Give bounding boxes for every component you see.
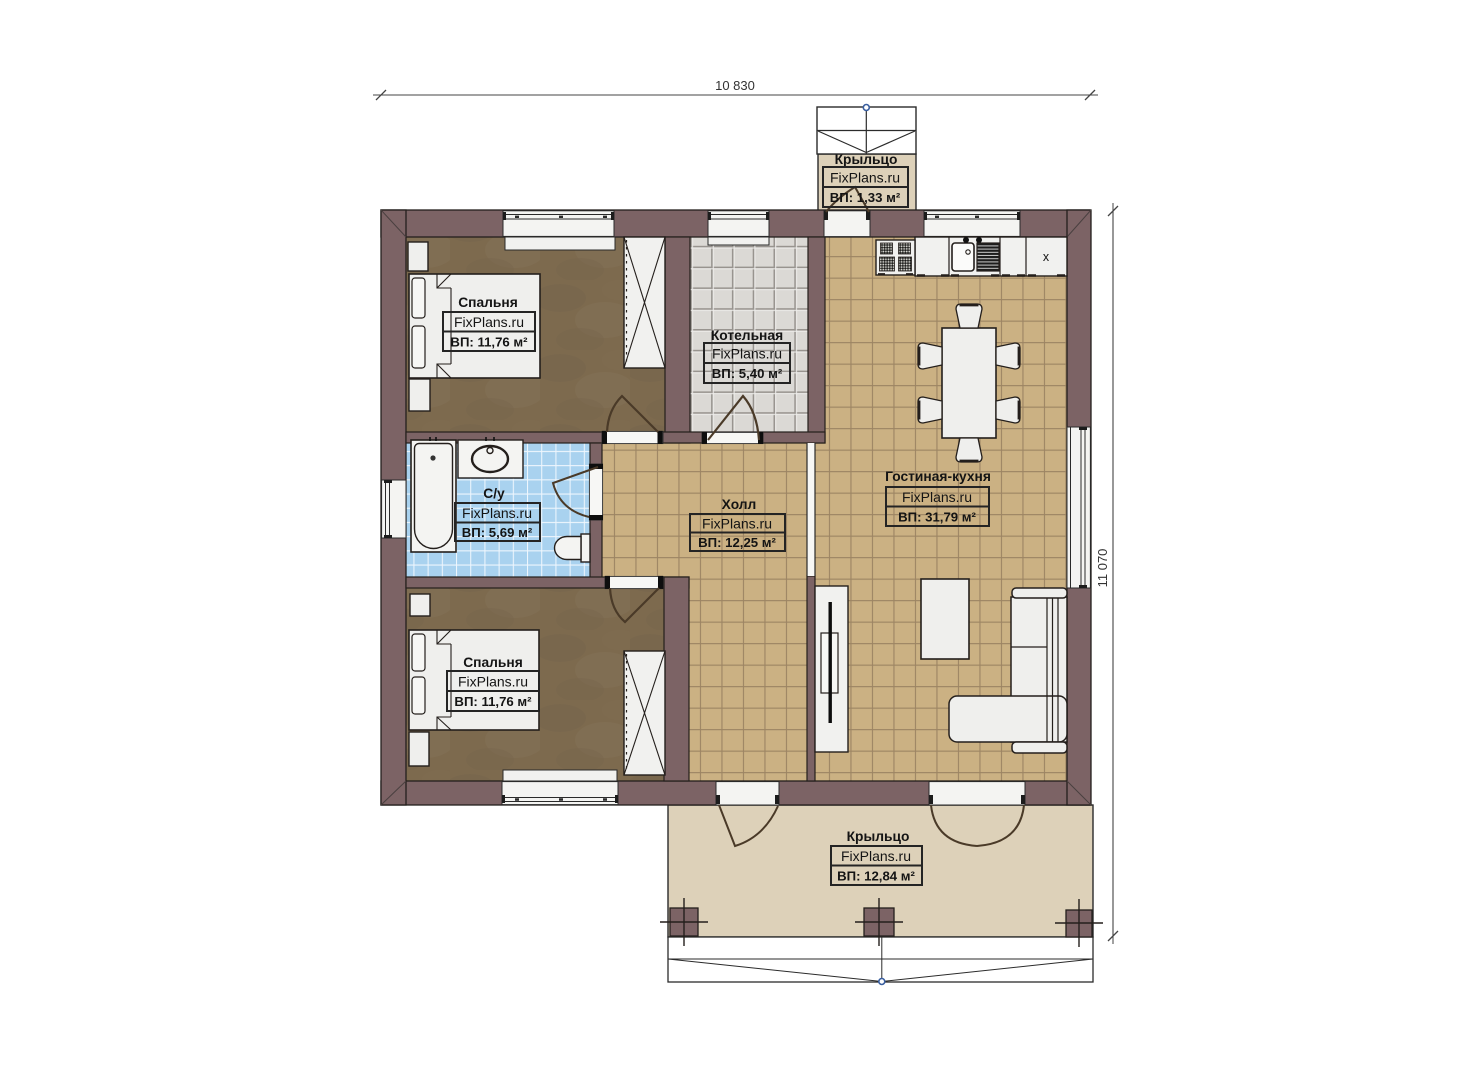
svg-text:Спальня: Спальня xyxy=(463,655,523,670)
svg-text:ВП: 5,40 м²: ВП: 5,40 м² xyxy=(712,366,783,381)
svg-text:x: x xyxy=(1043,250,1050,264)
svg-text:ВП: 1,33 м²: ВП: 1,33 м² xyxy=(830,190,901,205)
svg-text:ВП: 12,84 м²: ВП: 12,84 м² xyxy=(837,869,915,884)
svg-text:FixPlans.ru: FixPlans.ru xyxy=(458,674,528,690)
svg-text:ВП: 12,25 м²: ВП: 12,25 м² xyxy=(698,535,776,550)
svg-text:ВП: 11,76 м²: ВП: 11,76 м² xyxy=(454,694,532,709)
svg-text:10 830: 10 830 xyxy=(715,78,755,93)
svg-text:ВП: 31,79 м²: ВП: 31,79 м² xyxy=(898,510,976,525)
svg-text:Спальня: Спальня xyxy=(458,295,518,310)
svg-text:ВП: 5,69 м²: ВП: 5,69 м² xyxy=(462,525,533,540)
svg-text:FixPlans.ru: FixPlans.ru xyxy=(841,848,911,864)
svg-text:С/у: С/у xyxy=(483,486,505,501)
svg-text:FixPlans.ru: FixPlans.ru xyxy=(830,170,900,186)
svg-text:11 070: 11 070 xyxy=(1095,549,1110,588)
svg-text:Котельная: Котельная xyxy=(711,328,783,343)
svg-text:Гостиная-кухня: Гостиная-кухня xyxy=(885,469,991,484)
svg-text:FixPlans.ru: FixPlans.ru xyxy=(902,489,972,505)
svg-text:FixPlans.ru: FixPlans.ru xyxy=(462,505,532,521)
svg-text:Крыльцо: Крыльцо xyxy=(847,829,910,844)
svg-text:Крыльцо: Крыльцо xyxy=(835,152,898,167)
svg-text:FixPlans.ru: FixPlans.ru xyxy=(712,346,782,362)
svg-text:FixPlans.ru: FixPlans.ru xyxy=(454,314,524,330)
svg-text:Холл: Холл xyxy=(722,497,757,512)
svg-text:FixPlans.ru: FixPlans.ru xyxy=(702,516,772,532)
svg-text:ВП: 11,76 м²: ВП: 11,76 м² xyxy=(450,335,528,350)
